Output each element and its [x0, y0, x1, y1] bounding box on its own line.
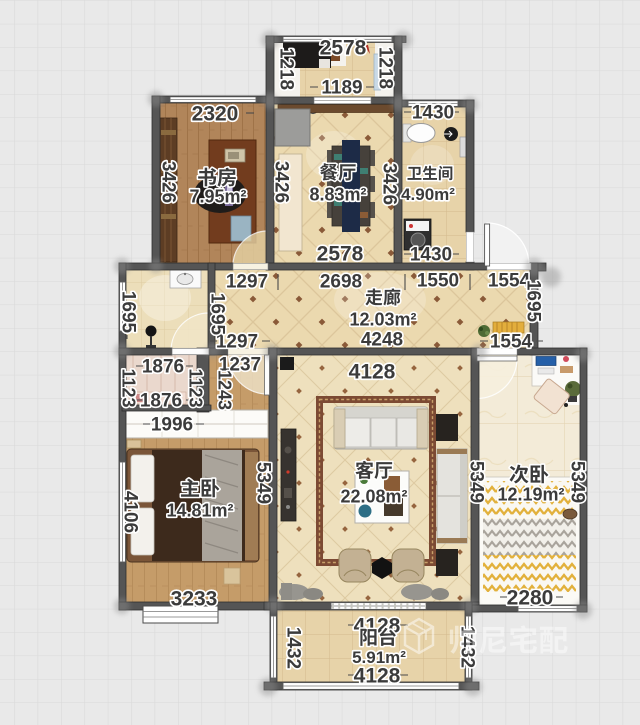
svg-text:4.90m²: 4.90m²	[401, 185, 455, 204]
svg-text:1430: 1430	[410, 245, 452, 266]
svg-text:12.19m²: 12.19m²	[497, 484, 564, 504]
svg-text:1695: 1695	[206, 293, 227, 336]
svg-text:2280: 2280	[507, 586, 554, 609]
svg-text:1695: 1695	[522, 280, 543, 323]
svg-text:1123: 1123	[119, 368, 139, 407]
svg-text:7.95m²: 7.95m²	[189, 186, 246, 206]
svg-text:1189: 1189	[321, 78, 362, 99]
svg-text:4248: 4248	[361, 330, 403, 351]
svg-text:1218: 1218	[275, 48, 296, 90]
svg-text:5349: 5349	[465, 461, 486, 503]
svg-text:4128: 4128	[349, 360, 396, 383]
svg-text:22.08m²: 22.08m²	[340, 486, 407, 506]
svg-text:1996: 1996	[151, 415, 193, 436]
svg-text:1297: 1297	[226, 272, 268, 293]
svg-text:14.81m²: 14.81m²	[166, 500, 233, 520]
svg-text:2578: 2578	[317, 242, 364, 265]
svg-text:5.91m²: 5.91m²	[352, 648, 406, 667]
svg-text:12.03m²: 12.03m²	[349, 309, 416, 329]
svg-text:1695: 1695	[117, 291, 138, 334]
svg-text:1432: 1432	[282, 627, 303, 669]
svg-text:1550: 1550	[417, 271, 459, 292]
svg-text:3426: 3426	[270, 161, 291, 203]
svg-text:2578: 2578	[320, 36, 367, 59]
svg-text:1554: 1554	[490, 332, 533, 353]
svg-text:3426: 3426	[378, 163, 399, 205]
svg-text:1218: 1218	[374, 47, 395, 89]
svg-text:5349: 5349	[566, 461, 587, 503]
svg-text:1876: 1876	[142, 357, 184, 378]
svg-text:4128: 4128	[354, 664, 401, 687]
svg-text:5349: 5349	[252, 462, 273, 504]
svg-text:2320: 2320	[192, 102, 239, 125]
svg-text:4106: 4106	[119, 491, 140, 533]
svg-text:3426: 3426	[157, 161, 178, 203]
svg-text:1430: 1430	[412, 103, 454, 124]
svg-text:1876: 1876	[140, 391, 182, 412]
svg-text:1123: 1123	[186, 368, 206, 407]
svg-text:1243: 1243	[215, 370, 235, 410]
svg-text:2698: 2698	[320, 272, 362, 293]
svg-text:8.83m²: 8.83m²	[309, 184, 366, 204]
svg-text:3233: 3233	[171, 587, 218, 610]
